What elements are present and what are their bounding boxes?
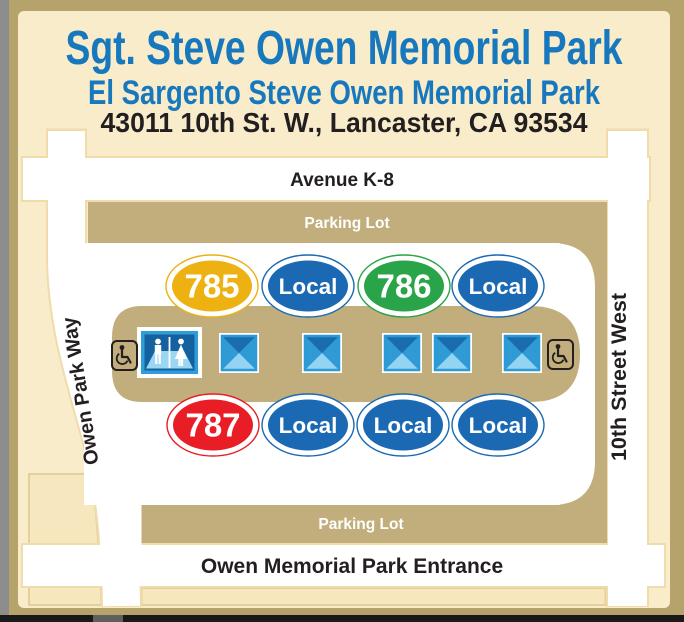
bus-bay-label: 786: [376, 268, 431, 305]
bus-bay-label: Local: [469, 413, 528, 438]
restroom-icon: [137, 327, 202, 378]
bus-bay-local-5: Local: [452, 394, 544, 456]
bus-bay-785: 785: [166, 255, 258, 317]
bus-bay-local-2: Local: [452, 255, 544, 317]
park-map-screenshot: Sgt. Steve Owen Memorial Park El Sargent…: [0, 0, 684, 622]
park-address: 43011 10th St. W., Lancaster, CA 93534: [101, 107, 588, 138]
bus-bay-label: Local: [279, 413, 338, 438]
street-label-10th-street-west: 10th Street West: [607, 293, 631, 461]
bus-bay-label: Local: [374, 413, 433, 438]
bus-bay-label: 787: [185, 407, 240, 444]
bus-bay-label: Local: [279, 274, 338, 299]
bus-bay-786: 786: [358, 255, 450, 317]
bus-bay-local-1: Local: [262, 255, 354, 317]
bus-bay-label: 785: [184, 268, 239, 305]
park-map: Sgt. Steve Owen Memorial Park El Sargent…: [0, 0, 684, 622]
parking-lot-label-top: Parking Lot: [304, 215, 389, 232]
bus-bay-787: 787: [167, 394, 259, 456]
parking-lot-label-bottom: Parking Lot: [318, 516, 403, 533]
shade-shelter-icon: [432, 333, 472, 373]
bus-bay-label: Local: [469, 274, 528, 299]
shade-shelter-icon: [502, 333, 542, 373]
street-label-avenue-k8: Avenue K-8: [290, 170, 394, 191]
shade-shelter-icon: [382, 333, 422, 373]
shade-shelter-icon: [219, 333, 259, 373]
street-label-entrance: Owen Memorial Park Entrance: [201, 555, 503, 578]
bus-bay-local-3: Local: [262, 394, 354, 456]
page-title: Sgt. Steve Owen Memorial Park: [66, 22, 623, 75]
bus-bay-local-4: Local: [357, 394, 449, 456]
shade-shelter-icon: [302, 333, 342, 373]
south-parcel-strip: [142, 588, 606, 605]
